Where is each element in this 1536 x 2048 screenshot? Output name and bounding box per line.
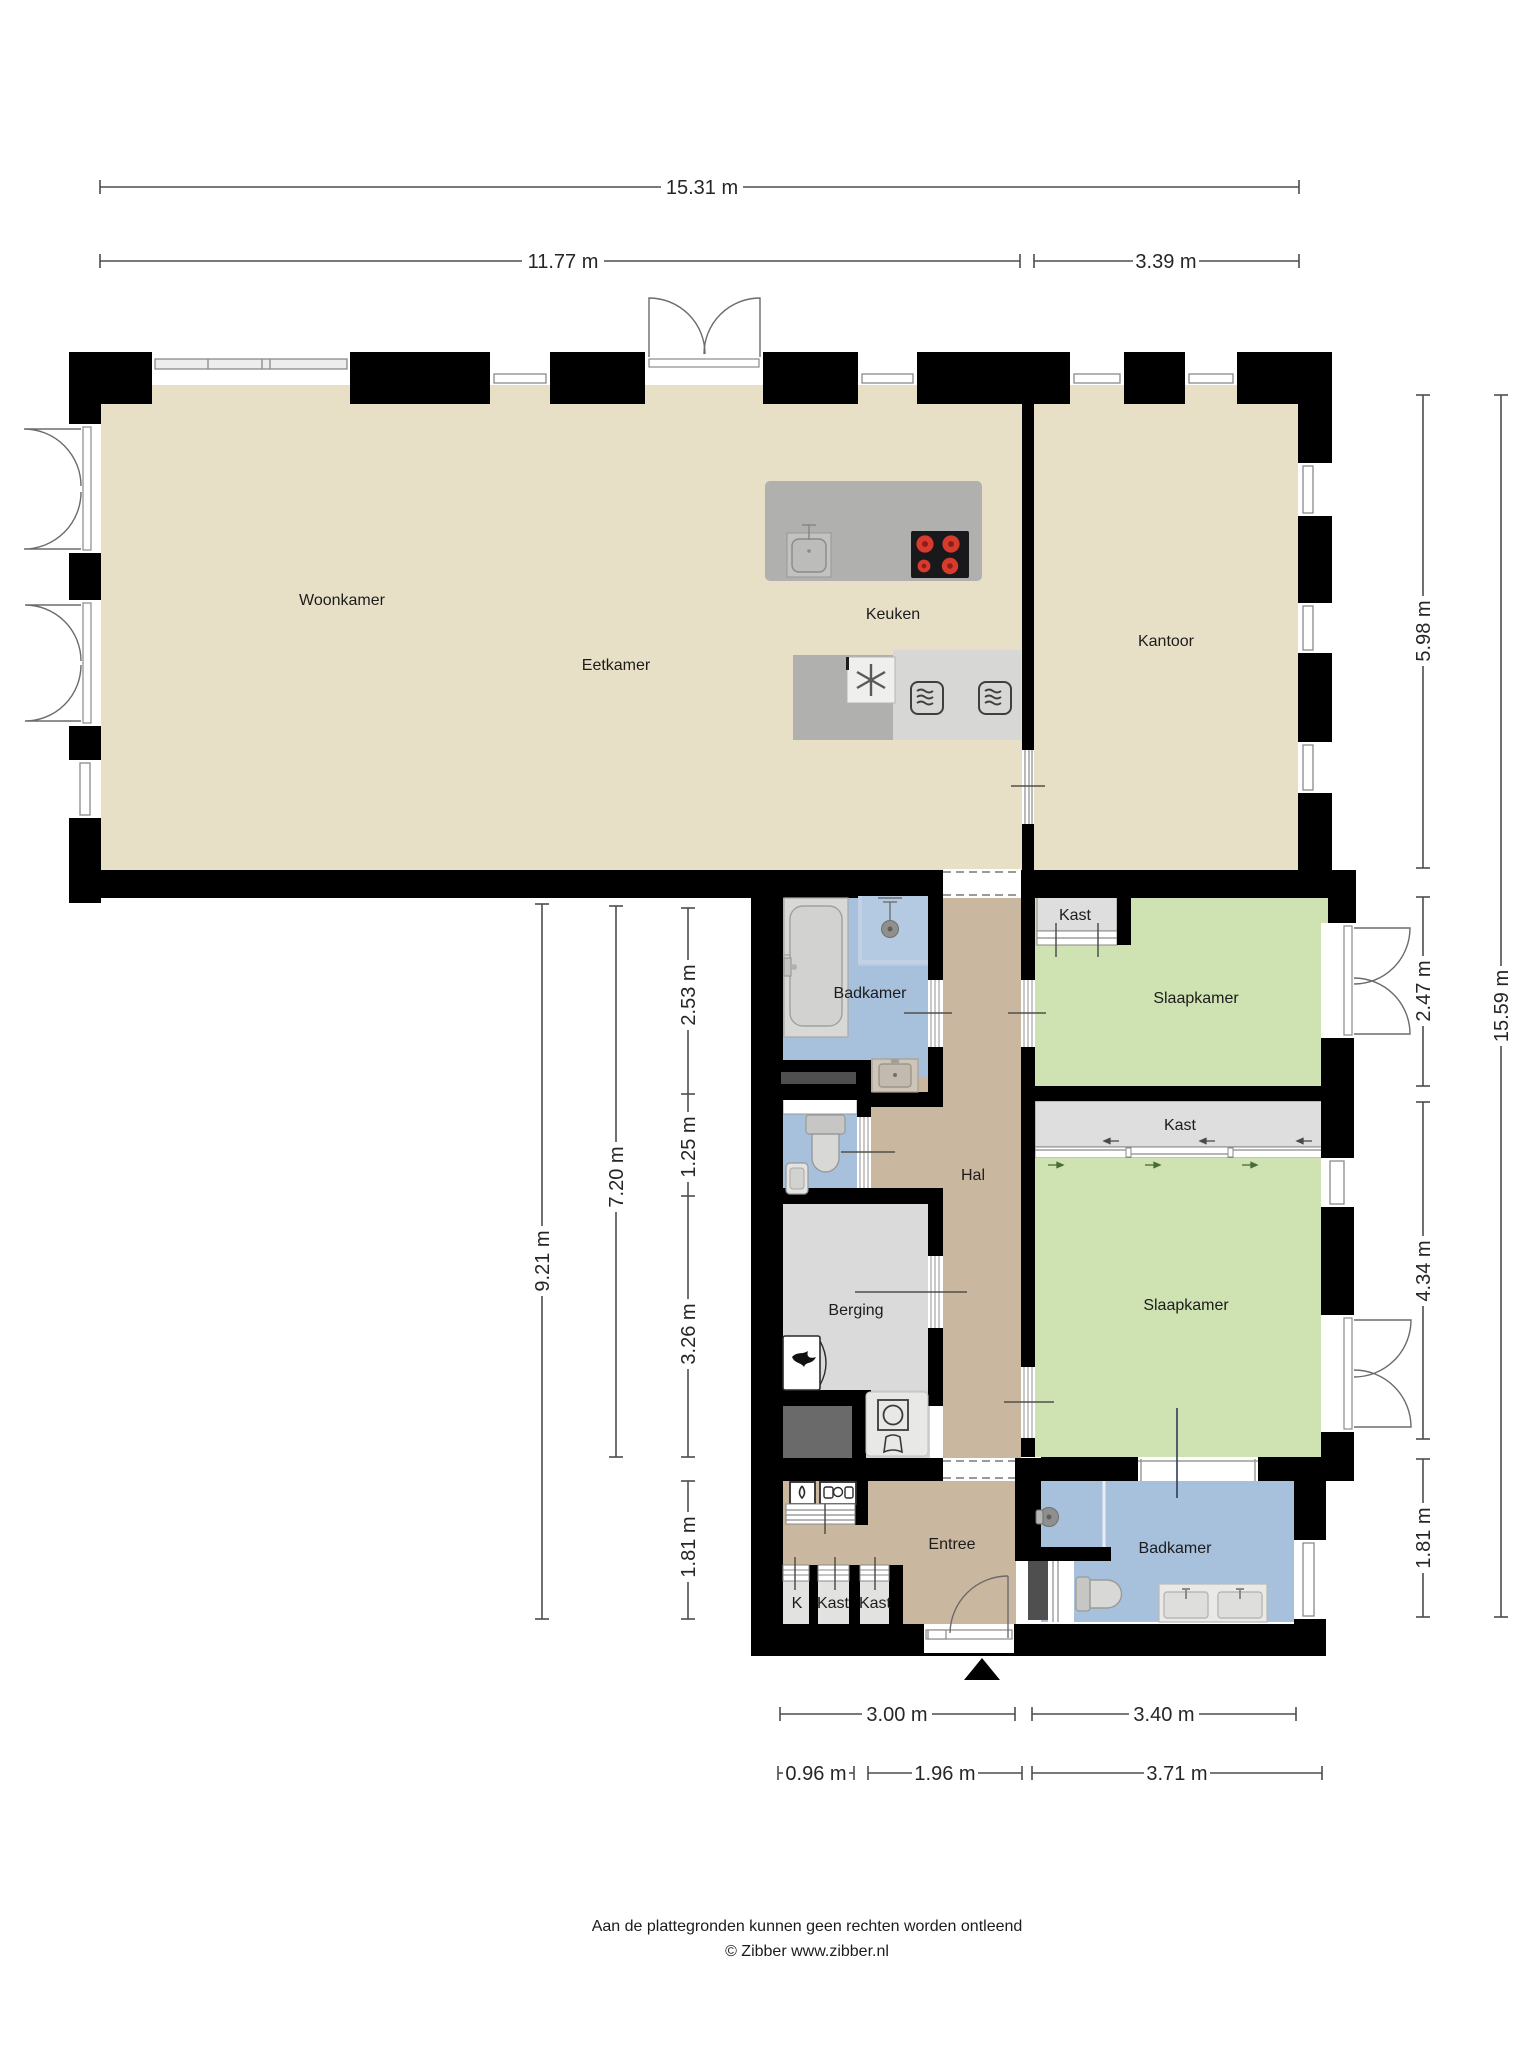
svg-text:9.21 m: 9.21 m (532, 1230, 554, 1291)
svg-text:3.71 m: 3.71 m (1146, 1763, 1207, 1785)
svg-text:11.77 m: 11.77 m (528, 251, 599, 273)
svg-text:Eetkamer: Eetkamer (582, 657, 651, 674)
svg-text:Aan de plattegronden kunnen ge: Aan de plattegronden kunnen geen rechten… (592, 1918, 1023, 1935)
svg-text:Badkamer: Badkamer (834, 985, 908, 1002)
svg-text:0.96 m: 0.96 m (785, 1763, 846, 1785)
svg-text:5.98 m: 5.98 m (1413, 600, 1435, 661)
svg-text:3.40 m: 3.40 m (1133, 1704, 1194, 1726)
svg-text:3.39 m: 3.39 m (1135, 251, 1196, 273)
svg-text:1.81 m: 1.81 m (678, 1516, 700, 1577)
svg-text:Kantoor: Kantoor (1138, 633, 1195, 650)
svg-text:© Zibber www.zibber.nl: © Zibber www.zibber.nl (725, 1943, 889, 1960)
svg-text:Woonkamer: Woonkamer (299, 592, 386, 609)
svg-text:K: K (792, 1595, 803, 1612)
svg-text:Slaapkamer: Slaapkamer (1143, 1297, 1229, 1314)
svg-text:Keuken: Keuken (866, 606, 920, 623)
svg-text:Kast: Kast (1059, 907, 1092, 924)
svg-text:15.31 m: 15.31 m (666, 177, 738, 199)
svg-text:15.59 m: 15.59 m (1491, 970, 1513, 1042)
svg-text:1.81 m: 1.81 m (1413, 1507, 1435, 1568)
svg-text:Entree: Entree (928, 1536, 975, 1553)
svg-text:3.26 m: 3.26 m (678, 1303, 700, 1364)
svg-text:2.47 m: 2.47 m (1413, 960, 1435, 1021)
svg-text:Hal: Hal (961, 1167, 985, 1184)
svg-text:Kast: Kast (1164, 1117, 1197, 1134)
svg-text:Badkamer: Badkamer (1139, 1540, 1213, 1557)
svg-text:Berging: Berging (828, 1302, 883, 1319)
svg-text:7.20 m: 7.20 m (606, 1146, 628, 1207)
svg-text:Kast: Kast (817, 1595, 850, 1612)
svg-text:3.00 m: 3.00 m (866, 1704, 927, 1726)
svg-text:1.96 m: 1.96 m (914, 1763, 975, 1785)
svg-text:1.25 m: 1.25 m (678, 1116, 700, 1177)
svg-text:4.34 m: 4.34 m (1413, 1240, 1435, 1301)
svg-text:Slaapkamer: Slaapkamer (1153, 990, 1239, 1007)
svg-text:Kast: Kast (859, 1595, 892, 1612)
svg-text:2.53 m: 2.53 m (678, 964, 700, 1025)
